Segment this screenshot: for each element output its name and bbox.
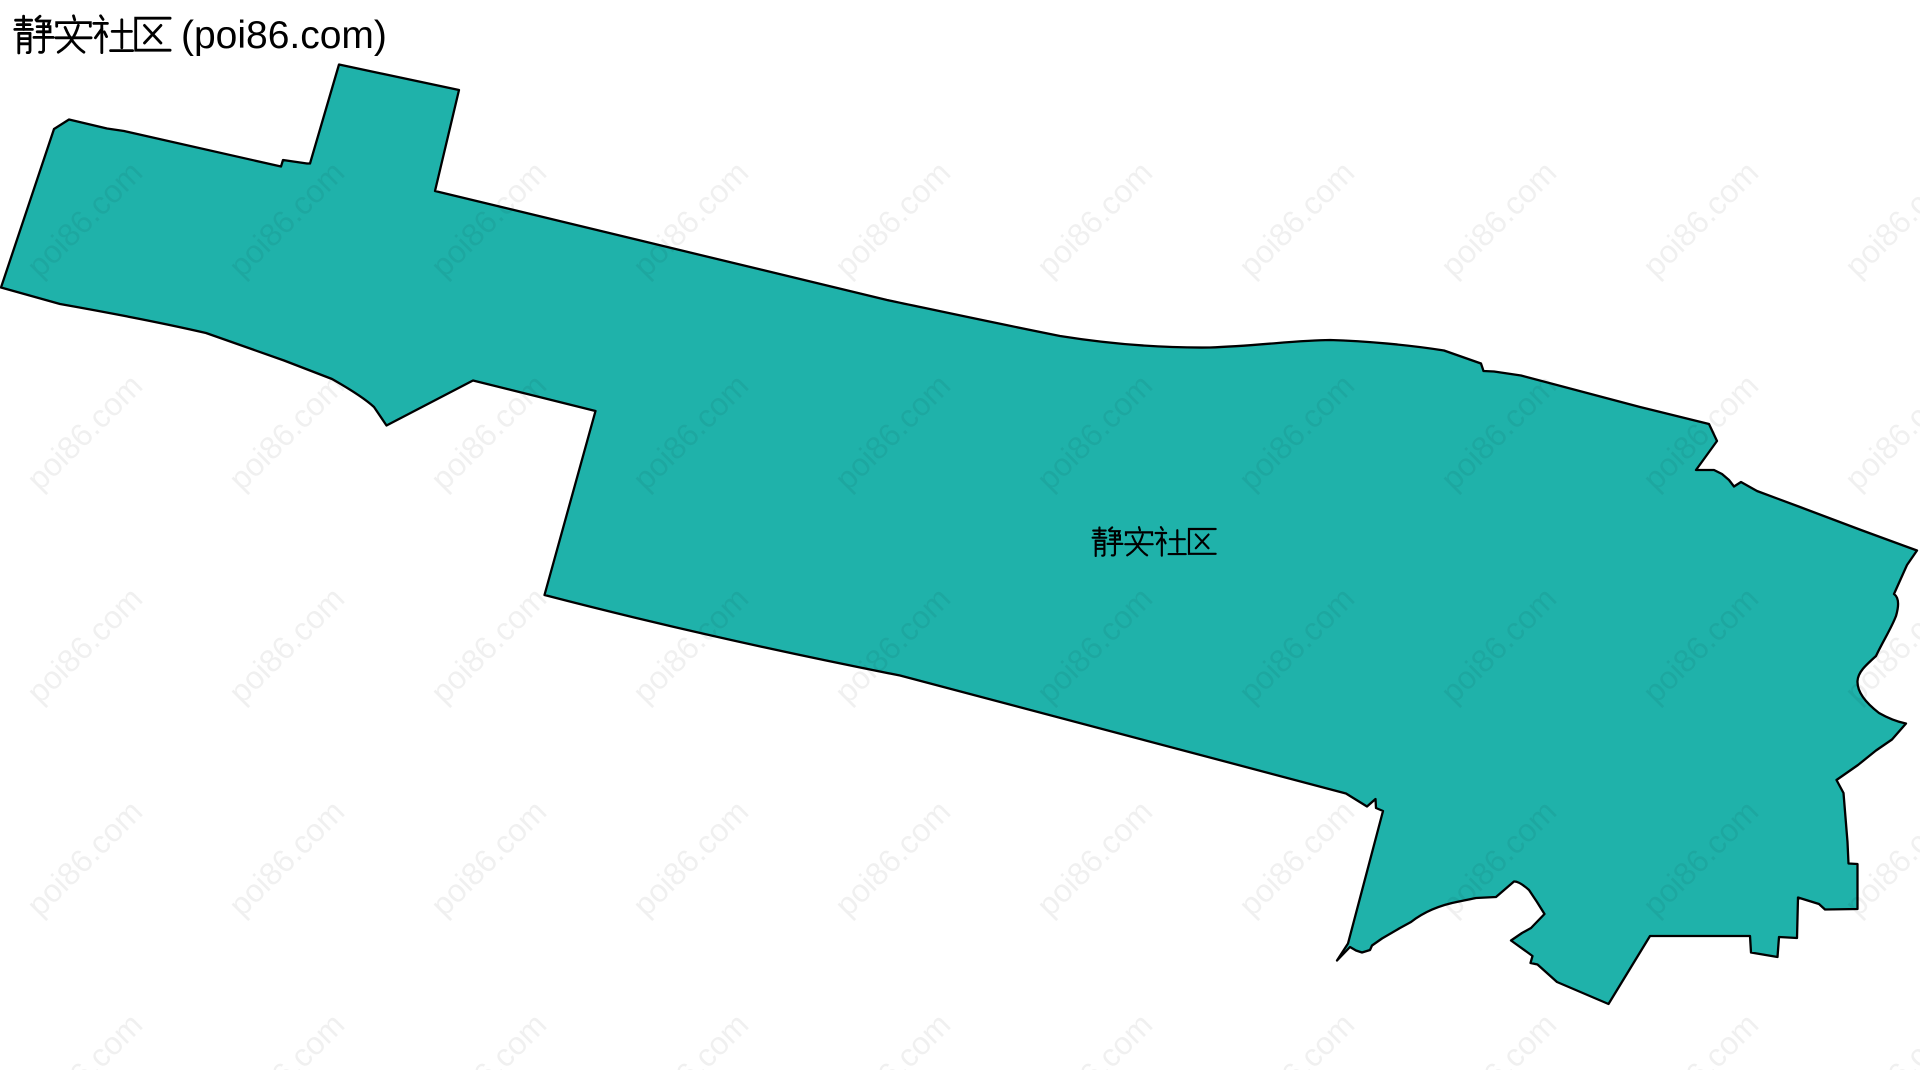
svg-text:poi86.com: poi86.com <box>625 1006 755 1070</box>
svg-text:poi86.com: poi86.com <box>221 367 351 497</box>
svg-text:poi86.com: poi86.com <box>221 793 351 923</box>
svg-text:poi86.com: poi86.com <box>827 154 957 284</box>
svg-text:poi86.com: poi86.com <box>19 580 149 710</box>
svg-text:poi86.com: poi86.com <box>827 1006 957 1070</box>
svg-text:poi86.com: poi86.com <box>423 580 553 710</box>
svg-text:poi86.com: poi86.com <box>1231 1006 1361 1070</box>
svg-text:poi86.com: poi86.com <box>1231 793 1361 923</box>
svg-text:poi86.com: poi86.com <box>423 793 553 923</box>
svg-text:poi86.com: poi86.com <box>221 1006 351 1070</box>
svg-text:poi86.com: poi86.com <box>1231 154 1361 284</box>
svg-text:poi86.com: poi86.com <box>1433 154 1563 284</box>
svg-text:poi86.com: poi86.com <box>19 367 149 497</box>
svg-text:poi86.com: poi86.com <box>221 580 351 710</box>
svg-text:poi86.com: poi86.com <box>625 793 755 923</box>
svg-text:poi86.com: poi86.com <box>423 1006 553 1070</box>
svg-text:poi86.com: poi86.com <box>1029 793 1159 923</box>
svg-text:poi86.com: poi86.com <box>19 1006 149 1070</box>
svg-text:poi86.com: poi86.com <box>1837 367 1920 497</box>
svg-text:poi86.com: poi86.com <box>827 793 957 923</box>
svg-text:poi86.com: poi86.com <box>1029 154 1159 284</box>
svg-text:poi86.com: poi86.com <box>1029 1006 1159 1070</box>
svg-text:poi86.com: poi86.com <box>1433 1006 1563 1070</box>
svg-text:(poi86.com): (poi86.com) <box>181 14 387 57</box>
svg-text:poi86.com: poi86.com <box>1837 154 1920 284</box>
svg-text:poi86.com: poi86.com <box>1837 1006 1920 1070</box>
svg-text:poi86.com: poi86.com <box>19 793 149 923</box>
svg-text:poi86.com: poi86.com <box>1635 1006 1765 1070</box>
svg-text:poi86.com: poi86.com <box>1635 154 1765 284</box>
svg-text:poi86.com: poi86.com <box>1837 793 1920 923</box>
